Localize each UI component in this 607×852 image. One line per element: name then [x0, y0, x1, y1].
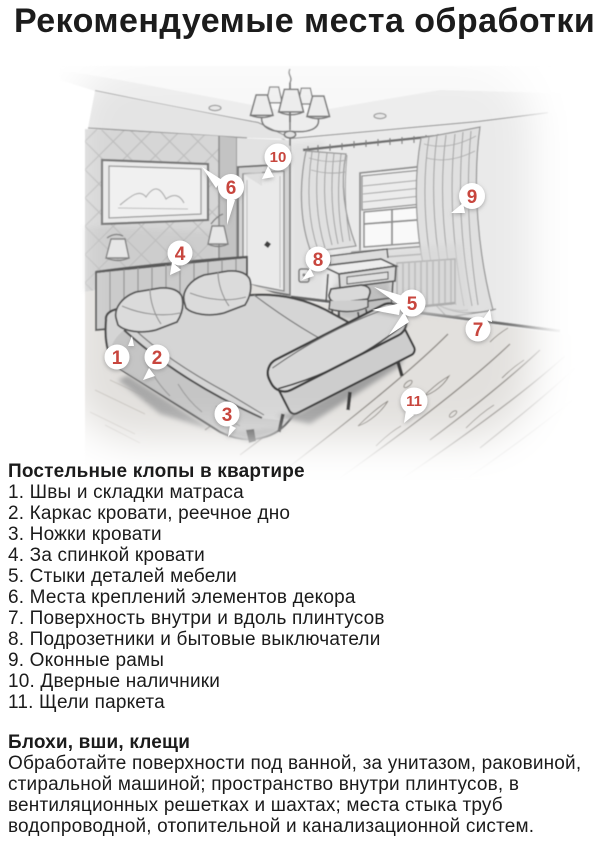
svg-text:3: 3 [222, 405, 233, 426]
svg-text:6: 6 [226, 178, 237, 199]
svg-text:8: 8 [313, 250, 324, 271]
svg-text:2: 2 [152, 348, 163, 369]
svg-text:7: 7 [473, 320, 484, 341]
svg-text:11: 11 [406, 393, 422, 410]
svg-text:1: 1 [112, 348, 123, 369]
svg-text:10: 10 [270, 149, 287, 166]
svg-text:5: 5 [407, 294, 418, 315]
svg-text:4: 4 [175, 244, 186, 265]
svg-text:9: 9 [467, 187, 478, 208]
